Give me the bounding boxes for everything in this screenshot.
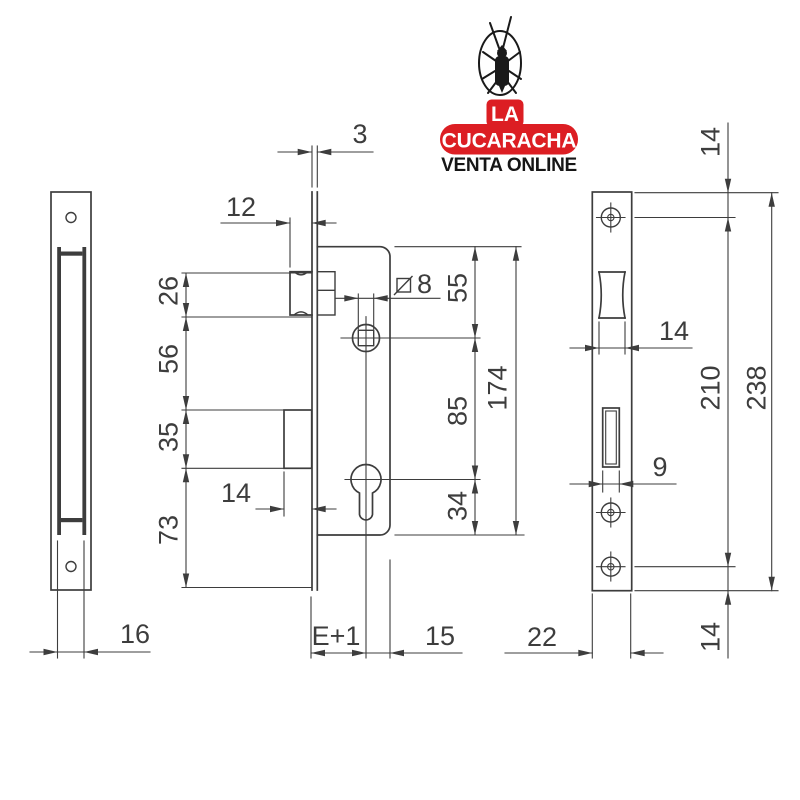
- dim-center-to-edge-label: 15: [425, 621, 455, 651]
- dim-bolt-throw-label: 14: [221, 478, 251, 508]
- dim-spindle-to-cylinder-label: 85: [443, 396, 473, 426]
- dim-bolt-to-bottom-label: 73: [154, 515, 184, 545]
- dim-bolt-cutout-label: 9: [652, 452, 667, 482]
- drawing-canvas: LA CUCARACHA VENTA ONLINE 16: [0, 0, 800, 800]
- dim-plate-width-label: 22: [527, 622, 557, 652]
- dim-backset-label: E+1: [312, 621, 361, 651]
- logo-la-text: LA: [491, 103, 519, 126]
- dim-bolt-height-label: 35: [154, 422, 184, 452]
- dim-plate-length-label: 238: [742, 365, 772, 410]
- dim-latch-protrusion-label: 12: [226, 192, 256, 222]
- dim-cylinder-to-bottom-label: 34: [443, 491, 473, 521]
- logo-cucaracha-text: CUCARACHA: [442, 130, 577, 153]
- dim-top-to-screw-label: 14: [696, 127, 726, 157]
- dim-case-length-label: 174: [483, 365, 513, 410]
- lock-technical-drawing: LA CUCARACHA VENTA ONLINE 16: [0, 0, 800, 800]
- dim-top-to-spindle-label: 55: [443, 273, 473, 303]
- dim-latch-height-label: 26: [154, 276, 184, 306]
- logo-tagline-text: VENTA ONLINE: [441, 155, 577, 176]
- dim-spindle-square-label: 8: [417, 269, 432, 299]
- dim-case-thickness-label: 16: [120, 619, 150, 649]
- dim-latch-cutout-label: 14: [659, 316, 689, 346]
- background: [0, 0, 800, 800]
- dim-latch-to-bolt-label: 56: [154, 344, 184, 374]
- dim-screw-spacing-label: 210: [696, 365, 726, 410]
- dim-plate-thickness-label: 3: [352, 119, 367, 149]
- dim-screw-to-bottom-label: 14: [696, 622, 726, 652]
